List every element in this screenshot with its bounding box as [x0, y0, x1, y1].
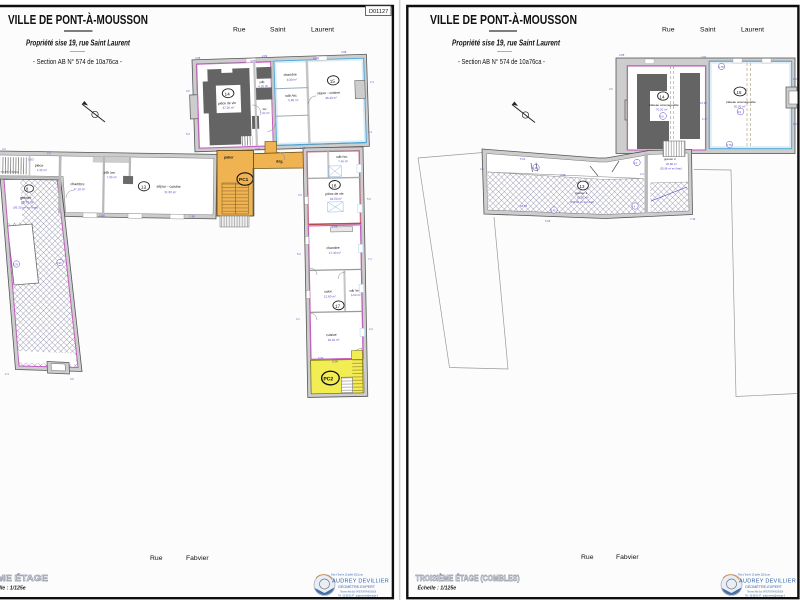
- svg-text:17.30 m²: 17.30 m²: [329, 251, 341, 255]
- svg-text:2.47: 2.47: [702, 117, 708, 121]
- svg-text:Laurent: Laurent: [311, 27, 334, 34]
- svg-text:2.00 m²: 2.00 m²: [260, 111, 270, 115]
- svg-text:15: 15: [330, 79, 336, 84]
- svg-text:16: 16: [331, 183, 337, 188]
- svg-text:grenier 2: grenier 2: [664, 157, 676, 161]
- svg-text:7.60 m²: 7.60 m²: [338, 159, 348, 163]
- svg-text:Fabvier: Fabvier: [186, 555, 209, 562]
- svg-text:5.06: 5.06: [332, 359, 338, 363]
- svg-text:AUDREY DEVILLIER: AUDREY DEVILLIER: [332, 579, 389, 585]
- svg-text:escalier montée: escalier montée: [1, 170, 20, 174]
- svg-text:TROISIÈME ÉTAGE (COMBLES): TROISIÈME ÉTAGE (COMBLES): [416, 573, 520, 583]
- svg-text:Saint: Saint: [270, 27, 286, 34]
- svg-text:PC1: PC1: [239, 177, 249, 183]
- svg-text:78 avenue Metz Sud - 54700 PON: 78 avenue Metz Sud - 54700 PONT-À-MOUSSO…: [340, 590, 376, 593]
- svg-text:Échelle : 1/125e: Échelle : 1/125e: [418, 584, 457, 592]
- svg-text:70.20 m²: 70.20 m²: [656, 108, 667, 112]
- svg-text:78 avenue Metz Sud - 54700 PON: 78 avenue Metz Sud - 54700 PONT-À-MOUSSO…: [747, 590, 783, 593]
- svg-text:(35.98 m² en l'état): (35.98 m² en l'état): [660, 167, 682, 171]
- svg-text:sdb /wc: sdb /wc: [104, 171, 116, 175]
- svg-text:4.88: 4.88: [619, 53, 625, 57]
- svg-text:4.66: 4.66: [331, 224, 337, 228]
- svg-text:(139.96 m² en l'état): (139.96 m² en l'état): [570, 200, 594, 204]
- svg-text:5.06: 5.06: [545, 219, 551, 223]
- svg-text:plateau aménageable: plateau aménageable: [649, 103, 679, 107]
- svg-text:4.88: 4.88: [195, 56, 201, 60]
- svg-text:palier: palier: [224, 156, 234, 160]
- svg-text:Fait à Toul le 10 juillet 2021: Fait à Toul le 10 juillet 2021 par: [738, 573, 770, 577]
- svg-text:pièce de vie: pièce de vie: [325, 192, 343, 196]
- svg-text:(36.32 m² en l'état): (36.32 m² en l'état): [13, 206, 38, 210]
- svg-text:17.10 m²: 17.10 m²: [73, 187, 85, 191]
- svg-text:7.1: 7.1: [368, 257, 372, 261]
- svg-text:2.6: 2.6: [298, 193, 302, 197]
- svg-text:grenier: grenier: [20, 196, 32, 200]
- svg-text:Fait à Toul le 10 juillet 2021: Fait à Toul le 10 juillet 2021 par: [331, 573, 363, 577]
- svg-text:36.40 m²: 36.40 m²: [325, 96, 337, 100]
- svg-text:2.49: 2.49: [551, 209, 556, 212]
- svg-text:1.40: 1.40: [300, 146, 306, 150]
- svg-text:PC2: PC2: [323, 376, 333, 382]
- svg-text:1.78: 1.78: [727, 143, 733, 147]
- svg-text:4.32 m²: 4.32 m²: [37, 168, 47, 172]
- svg-text:3.6: 3.6: [609, 87, 613, 91]
- svg-text:2.4: 2.4: [370, 80, 374, 84]
- svg-text:50.20 m²: 50.20 m²: [734, 105, 745, 109]
- svg-text:2.4: 2.4: [634, 162, 638, 165]
- svg-text:9.30 m²: 9.30 m²: [287, 78, 297, 82]
- svg-text:4.9: 4.9: [738, 110, 742, 114]
- svg-text:dég.: dég.: [276, 160, 283, 164]
- svg-text:2.4: 2.4: [632, 205, 636, 208]
- svg-text:12.60 m²: 12.60 m²: [324, 294, 336, 298]
- svg-text:4.06: 4.06: [250, 59, 256, 63]
- svg-text:13: 13: [141, 185, 147, 190]
- svg-text:4.88: 4.88: [313, 56, 319, 60]
- svg-text:2.3: 2.3: [640, 172, 644, 176]
- svg-text:14: 14: [225, 92, 231, 97]
- svg-text:4.0: 4.0: [480, 167, 484, 171]
- svg-text:1.78: 1.78: [719, 65, 725, 69]
- svg-text:cuisine: cuisine: [326, 333, 337, 337]
- svg-text:4.2: 4.2: [369, 327, 373, 331]
- svg-text:3.0: 3.0: [70, 377, 74, 381]
- svg-text:15: 15: [737, 90, 742, 95]
- svg-text:4.88: 4.88: [341, 50, 347, 54]
- svg-text:13: 13: [580, 184, 585, 189]
- svg-text:7.40: 7.40: [189, 214, 195, 218]
- svg-text:séjour - cuisine: séjour - cuisine: [317, 91, 340, 96]
- svg-text:17: 17: [335, 304, 341, 309]
- svg-text:5.0: 5.0: [186, 132, 190, 136]
- svg-text:Rue: Rue: [233, 27, 246, 34]
- svg-text:plateau aménageable: plateau aménageable: [726, 100, 756, 104]
- svg-text:5.60 m²: 5.60 m²: [351, 293, 361, 297]
- svg-text:5.2: 5.2: [297, 252, 301, 256]
- svg-text:Rue: Rue: [662, 27, 675, 34]
- svg-text:3.6: 3.6: [186, 89, 190, 93]
- svg-text:Saint: Saint: [700, 27, 716, 34]
- svg-text:5.60 m²: 5.60 m²: [288, 98, 298, 102]
- svg-text:Propriété sise 19, rue Saint L: Propriété sise 19, rue Saint Laurent: [452, 38, 561, 48]
- svg-text:6.20 m²: 6.20 m²: [258, 84, 268, 88]
- svg-text:pièce: pièce: [35, 164, 44, 168]
- svg-text:Tél : 03.83.81.47 - adgeometre: Tél : 03.83.81.47 - adgeometre@orange.fr: [338, 595, 378, 598]
- svg-text:2.82: 2.82: [701, 55, 707, 59]
- svg-text:4.9: 4.9: [660, 115, 664, 119]
- svg-text:4.0: 4.0: [2, 147, 6, 151]
- svg-text:31.90 m²: 31.90 m²: [164, 190, 176, 194]
- svg-text:séjour - cuisine: séjour - cuisine: [156, 184, 180, 188]
- svg-text:37.20 m²: 37.20 m²: [223, 106, 235, 110]
- svg-text:Rue: Rue: [150, 555, 163, 562]
- svg-text:Tél : 03.83.81.47 - adgeometre: Tél : 03.83.81.47 - adgeometre@orange.fr: [745, 595, 785, 598]
- svg-text:Laurent: Laurent: [741, 27, 764, 34]
- svg-text:2.4: 2.4: [5, 372, 9, 376]
- svg-text:10.96: 10.96: [700, 101, 707, 105]
- svg-text:5.6: 5.6: [367, 197, 371, 201]
- svg-text:2.3: 2.3: [47, 151, 51, 155]
- svg-text:5.03: 5.03: [28, 157, 34, 161]
- svg-text:7.90 m²: 7.90 m²: [107, 175, 117, 179]
- svg-text:AUDREY DEVILLIER: AUDREY DEVILLIER: [739, 579, 796, 585]
- svg-text:6.4: 6.4: [793, 122, 797, 126]
- svg-text:18.76: 18.76: [520, 204, 527, 208]
- svg-text:2.47: 2.47: [255, 147, 261, 151]
- svg-text:DEUXIÈME ÉTAGE: DEUXIÈME ÉTAGE: [0, 573, 48, 583]
- svg-text:4.06: 4.06: [560, 173, 566, 177]
- svg-text:14: 14: [660, 95, 665, 100]
- svg-text:3.1: 3.1: [296, 317, 300, 321]
- svg-text:5.06: 5.06: [318, 356, 324, 360]
- svg-text:chambre: chambre: [326, 246, 339, 250]
- svg-text:Rue: Rue: [581, 554, 594, 561]
- svg-text:26.80 m²: 26.80 m²: [666, 162, 677, 166]
- svg-text:22.50 m²: 22.50 m²: [330, 197, 342, 201]
- svg-text:GÉOMÈTRE-EXPERT: GÉOMÈTRE-EXPERT: [745, 584, 783, 589]
- svg-text:Propriété sise 19, rue Saint L: Propriété sise 19, rue Saint Laurent: [26, 38, 131, 48]
- svg-text:26.70 m²: 26.70 m²: [21, 201, 34, 205]
- svg-text:VILLE DE PONT-À-MOUSSON: VILLE DE PONT-À-MOUSSON: [430, 12, 577, 27]
- svg-text:2.76: 2.76: [13, 263, 18, 266]
- svg-text:7.40: 7.40: [690, 217, 696, 221]
- svg-text:91.80 m²: 91.80 m²: [577, 196, 588, 200]
- svg-text:D01127: D01127: [369, 9, 388, 15]
- svg-text:2.90: 2.90: [57, 262, 62, 265]
- svg-text:2.4: 2.4: [793, 77, 797, 81]
- svg-text:VILLE DE PONT-À-MOUSSON: VILLE DE PONT-À-MOUSSON: [8, 12, 148, 27]
- svg-text:grenier 1: grenier 1: [575, 191, 587, 195]
- svg-text:5.03: 5.03: [520, 157, 526, 161]
- svg-text:salon: salon: [324, 289, 332, 293]
- svg-text:- Section AB N° 574 de 10a76ca: - Section AB N° 574 de 10a76ca -: [33, 57, 122, 66]
- svg-text:Echelle : 1/125e: Echelle : 1/125e: [0, 586, 26, 592]
- svg-text:Fabvier: Fabvier: [616, 554, 639, 561]
- svg-text:- Section AB N° 574 de 10a76ca: - Section AB N° 574 de 10a76ca -: [458, 57, 545, 66]
- svg-text:chambre: chambre: [283, 73, 296, 77]
- svg-text:6.4: 6.4: [368, 130, 372, 134]
- svg-text:chambre: chambre: [70, 182, 84, 186]
- svg-text:2.82: 2.82: [262, 54, 268, 58]
- svg-text:5.06: 5.06: [99, 214, 105, 218]
- svg-text:GÉOMÈTRE-EXPERT: GÉOMÈTRE-EXPERT: [338, 584, 376, 589]
- svg-text:16.10 m²: 16.10 m²: [328, 338, 340, 342]
